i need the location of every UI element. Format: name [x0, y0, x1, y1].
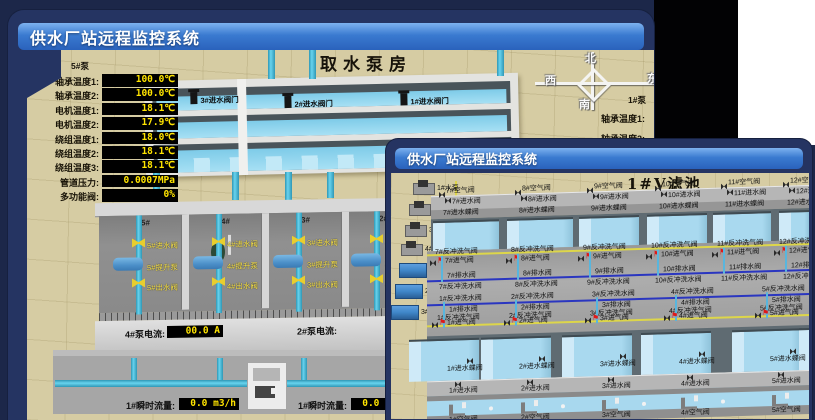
air-inlet-valve-label: 5#进气阀: [770, 309, 799, 318]
backwash-water-valve-label: 8#反冲洗水阀: [515, 280, 558, 289]
air-inlet-valve-label: 8#进气阀: [521, 255, 550, 264]
basin-channel: [153, 109, 511, 139]
outlet-stub-pipe: [217, 358, 223, 380]
inlet-valve-label: 3#进水阀: [307, 237, 338, 249]
branch-pipe: [657, 249, 659, 275]
air-inlet-valve-label: 10#进气阀: [661, 250, 694, 259]
outlet-main-pipe: [55, 380, 395, 387]
param-value: 100.0℃: [102, 74, 178, 87]
air-valve-label: 10#空气阀: [662, 180, 695, 189]
air-inlet-valve-label: 2#进气阀: [519, 317, 548, 326]
inlet-butterfly-valve-label: 4#进水蝶阀: [679, 358, 715, 367]
down-pipe: [232, 172, 239, 200]
gate-valve-label: 3#进水阀门: [200, 94, 239, 106]
filter-grid: 7#反冲洗气阀⚑7#进气阀7#排水阀7#反冲洗水阀8#反冲洗气阀⚑8#进气阀8#…: [427, 175, 809, 419]
gate-valve-icon[interactable]: [400, 93, 407, 105]
drain-valve-label: 9#排水阀: [595, 267, 624, 276]
inlet-butterfly-valve-label: 2#进水蝶阀: [519, 363, 555, 372]
valve-icon[interactable]: [430, 260, 436, 266]
pump-room: 5#5#进水阀5#提升泵5#出水阀4#4#进水阀4#提升泵4#出水阀3#3#进水…: [95, 198, 393, 355]
bay-number-label: 5#: [141, 218, 150, 227]
riser-pipe: [268, 50, 275, 79]
filter-pool: [713, 211, 771, 243]
air-valve-label: 8#空气阀: [522, 185, 551, 194]
branch-pipe: [785, 246, 787, 272]
water: [157, 115, 507, 139]
central-gallery: 7#反冲洗气阀⚑7#进气阀7#排水阀7#反冲洗水阀8#反冲洗气阀⚑8#进气阀8#…: [427, 240, 809, 337]
bay-number-label: 3#: [301, 215, 310, 224]
air-valve-label: 4#空气阀: [681, 409, 710, 418]
air-valve-label: 5#空气阀: [772, 406, 801, 415]
air-valve-label: 9#空气阀: [594, 183, 623, 192]
lift-pump-icon[interactable]: [351, 253, 381, 267]
alarm-flag-icon: ⚑: [671, 312, 678, 320]
air-valve-label: 11#空气阀: [728, 178, 760, 187]
param-value: 18.1℃: [102, 160, 178, 173]
lift-pump-label: 5#提升泵: [147, 262, 178, 274]
outlet-valve-label: 3#出水阀: [307, 279, 338, 291]
inlet-butterfly-valve-label: 3#进水蝶阀: [600, 360, 636, 369]
blower-fan-icon[interactable]: [395, 284, 423, 299]
down-pipe: [285, 172, 292, 200]
pump-5-label: 5#泵: [71, 60, 89, 72]
pump-current-value: 00.0 A: [167, 325, 223, 338]
valve-icon[interactable]: [755, 312, 761, 318]
flow-label: 1#瞬时流量:: [285, 399, 347, 412]
backwash-water-valve-label: 11#反冲洗水阀: [721, 274, 767, 283]
lift-pump-icon[interactable]: [193, 256, 223, 270]
air-valve-label: 2#空气阀: [521, 414, 550, 419]
param-value: 0.0007MPa: [102, 175, 178, 188]
param-value: 18.0℃: [102, 132, 178, 145]
down-pipe: [327, 172, 334, 198]
param-value: 17.9℃: [102, 117, 178, 130]
front-window-title: 供水厂站远程监控系统: [407, 149, 537, 168]
scene-title-intake: 取水泵房: [320, 50, 412, 75]
branch-pipe: [517, 254, 519, 280]
filter-pool: [433, 219, 499, 251]
param-label-partial: 轴承温度1:: [601, 112, 645, 125]
air-valve-label: 1#空气阀: [449, 416, 478, 419]
inlet-butterfly-valve-label: 1#进水蝶阀: [447, 365, 483, 374]
blower-fan-icon[interactable]: [391, 305, 419, 320]
pump-current-label: 2#泵电流:: [281, 324, 337, 338]
flow-value: 0.0 m3/h: [179, 398, 239, 410]
bay-pillar: [261, 213, 269, 308]
bay-number-label: 4#: [221, 217, 230, 226]
inlet-valve-label: 11#进水阀: [734, 189, 766, 198]
valve-icon[interactable]: [646, 254, 652, 260]
air-inlet-valve-label: 7#进气阀: [445, 257, 474, 266]
filter-pool: [579, 215, 639, 247]
gate-valve-icon[interactable]: [190, 92, 197, 104]
outlet-valve-label: 4#出水阀: [227, 280, 258, 292]
riser-pipe: [309, 50, 316, 79]
air-inlet-valve-label: 9#进气阀: [593, 253, 622, 262]
air-inlet-valve-label: 1#进气阀: [447, 319, 476, 328]
compass-south: 南: [579, 96, 590, 112]
backwash-water-valve-label: 2#反冲洗水阀: [511, 293, 554, 302]
air-valve-label: 12#空气阀: [790, 177, 809, 186]
air-inlet-valve-label: 12#进气阀: [789, 247, 809, 256]
inlet-butterfly-valve-label: 10#进水蝶阀: [659, 202, 699, 211]
inlet-valve-label: 8#进水阀: [528, 195, 557, 204]
water-pump-icon[interactable]: [405, 225, 427, 237]
lift-pump-label: 4#提升泵: [227, 260, 258, 272]
air-valve-label: 7#空气阀: [446, 187, 475, 196]
back-window-title: 供水厂站远程监控系统: [30, 25, 200, 49]
backwash-water-valve-label: 4#反冲洗水阀: [671, 288, 714, 297]
compass-north: 北: [585, 50, 596, 66]
param-label: 轴承温度2:: [27, 89, 99, 102]
outlet-stub-pipe: [131, 358, 137, 380]
air-inlet-valve-label: 11#进气阀: [727, 248, 759, 257]
backwash-water-valve-label: 5#反冲洗水阀: [762, 285, 805, 294]
lift-pump-icon[interactable]: [273, 255, 303, 269]
param-label: 电机温度1:: [27, 104, 99, 117]
branch-pipe: [441, 256, 443, 282]
riser-pipe: [497, 50, 504, 76]
filter-pool-scene[interactable]: 1#V滤池 1#水泵2#水泵3#水泵4#水泵 1#风机2#风机3#风机 7#反冲…: [391, 173, 809, 419]
param-label: 管道压力:: [27, 176, 99, 189]
flow-meter-device[interactable]: [247, 362, 287, 410]
flange-dot: [642, 402, 646, 406]
inlet-butterfly-valve-label: 9#进水蝶阀: [591, 204, 627, 213]
drain-valve-label: 12#排水阀: [791, 262, 809, 271]
inlet-butterfly-valve-label: 12#进水蝶阀: [787, 198, 809, 207]
param-value: 18.1℃: [102, 103, 178, 116]
back-window-titlebar[interactable]: 供水厂站远程监控系统: [18, 23, 644, 50]
front-window-titlebar[interactable]: 供水厂站远程监控系统: [395, 148, 803, 169]
valve-icon[interactable]: [774, 250, 780, 256]
inlet-butterfly-valve-label: 7#进水蝶阀: [443, 209, 479, 218]
alarm-flag-icon: ⚑: [511, 317, 518, 325]
valve-icon[interactable]: [578, 256, 584, 262]
outlet-valve-label: 5#出水阀: [147, 282, 178, 294]
flow-label: 1#瞬时流量:: [113, 399, 175, 412]
blower-fan-icon[interactable]: [399, 263, 427, 278]
alarm-flag-icon: ⚑: [762, 309, 769, 317]
param-label: 绕组温度1:: [27, 133, 99, 146]
bay-pillar: [341, 212, 349, 307]
air-inlet-valve-label: 3#进气阀: [600, 314, 629, 323]
backwash-water-valve-label: 10#反冲洗水阀: [655, 276, 702, 285]
outlet-stub-pipe: [301, 358, 307, 380]
lift-pump-label: 3#提升泵: [307, 259, 338, 271]
inlet-valve-label: 5#进水阀: [147, 240, 178, 252]
gate-valve-icon[interactable]: [284, 96, 291, 108]
filter-pool: [779, 210, 809, 241]
param-label: 电机温度2:: [27, 118, 99, 131]
param-value: 100.0℃: [102, 88, 178, 101]
alarm-flag-icon: ⚑: [592, 314, 599, 322]
filter-pool: [647, 213, 707, 245]
param-value: 18.1℃: [102, 146, 178, 159]
param-label: 绕组温度3:: [27, 161, 99, 174]
inlet-butterfly-valve-label: 5#进水蝶阀: [770, 355, 806, 364]
backwash-water-valve-label: 3#反冲洗水阀: [592, 290, 635, 299]
param-label: 绕组温度2:: [27, 147, 99, 160]
valve-icon[interactable]: [712, 252, 718, 258]
water-pump-icon[interactable]: [401, 244, 423, 256]
branch-pipe: [589, 251, 591, 277]
filter-pool: [507, 217, 573, 249]
drain-valve-label: 7#排水阀: [447, 272, 476, 281]
flow-meter-port: [271, 388, 277, 394]
backwash-water-valve-label: 12#反冲洗水阀: [783, 272, 809, 281]
inlet-valve-label: 9#进水阀: [600, 193, 629, 202]
backwash-water-valve-label: 7#反冲洗水阀: [439, 283, 482, 292]
flange-dot: [489, 406, 493, 410]
flange-dot: [561, 404, 565, 408]
branch-pipe: [723, 247, 725, 273]
flange-dot: [721, 399, 725, 403]
backwash-water-valve-label: 1#反冲洗水阀: [439, 295, 482, 304]
inlet-valve-label: 7#进水阀: [452, 198, 481, 207]
filter-pool: [799, 328, 809, 370]
backwash-water-valve-label: 9#反冲洗水阀: [587, 278, 630, 287]
desktop-white-area: [737, 0, 815, 145]
air-valve-label: 3#空气阀: [602, 411, 631, 419]
pump-current-label: 4#泵电流:: [109, 327, 165, 341]
valve-icon[interactable]: [506, 258, 512, 264]
lift-pump-icon[interactable]: [113, 257, 143, 271]
pump-1-label: 1#泵: [628, 94, 646, 106]
desktop: 供水厂站远程监控系统 取水泵房 5#泵 3#进水阀门2#进水阀门1#进水阀门: [0, 0, 815, 420]
air-inlet-valve-label: 4#进气阀: [679, 312, 708, 321]
inlet-valve-label: 10#进水阀: [668, 191, 701, 200]
inlet-butterfly-valve-label: 11#进水蝶阀: [725, 200, 764, 209]
inlet-valve-label: 4#进水阀: [227, 238, 258, 250]
gate-valve-label: 2#进水阀门: [294, 98, 333, 110]
inlet-butterfly-valve-label: 8#进水蝶阀: [519, 207, 555, 216]
alarm-flag-icon: ⚑: [439, 319, 446, 327]
param-value: 0%: [102, 189, 178, 202]
front-window: 供水厂站远程监控系统 1#V滤池 1#水泵2#水泵3#水泵4#水泵 1#风机2#…: [386, 139, 812, 420]
compass-east: 东: [647, 70, 654, 86]
gate-valve-label: 1#进水阀门: [410, 95, 449, 107]
flow-meter-display: [253, 368, 280, 381]
drain-valve-label: 10#排水阀: [663, 265, 696, 274]
drain-valve-label: 8#排水阀: [523, 270, 552, 279]
drain-valve-label: 11#排水阀: [729, 263, 761, 272]
bay-pillar: [181, 215, 189, 310]
inlet-valve-label: 12#进水阀: [796, 187, 809, 196]
param-label: 轴承温度1:: [27, 75, 99, 88]
compass-west: 西: [545, 72, 556, 88]
param-label: 多功能阀:: [27, 190, 99, 203]
